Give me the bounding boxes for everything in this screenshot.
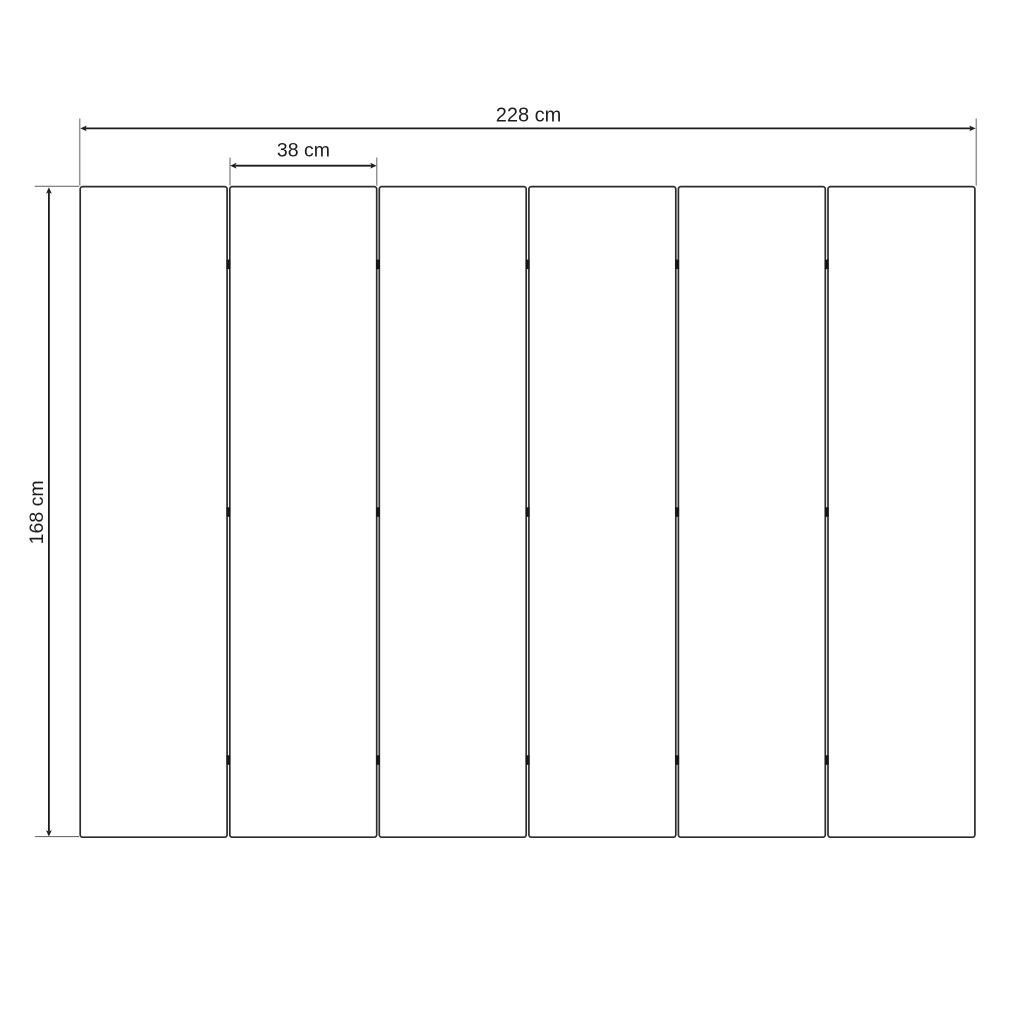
svg-text:38 cm: 38 cm [277,140,330,162]
svg-text:168 cm: 168 cm [26,480,48,544]
svg-text:228 cm: 228 cm [496,105,562,127]
